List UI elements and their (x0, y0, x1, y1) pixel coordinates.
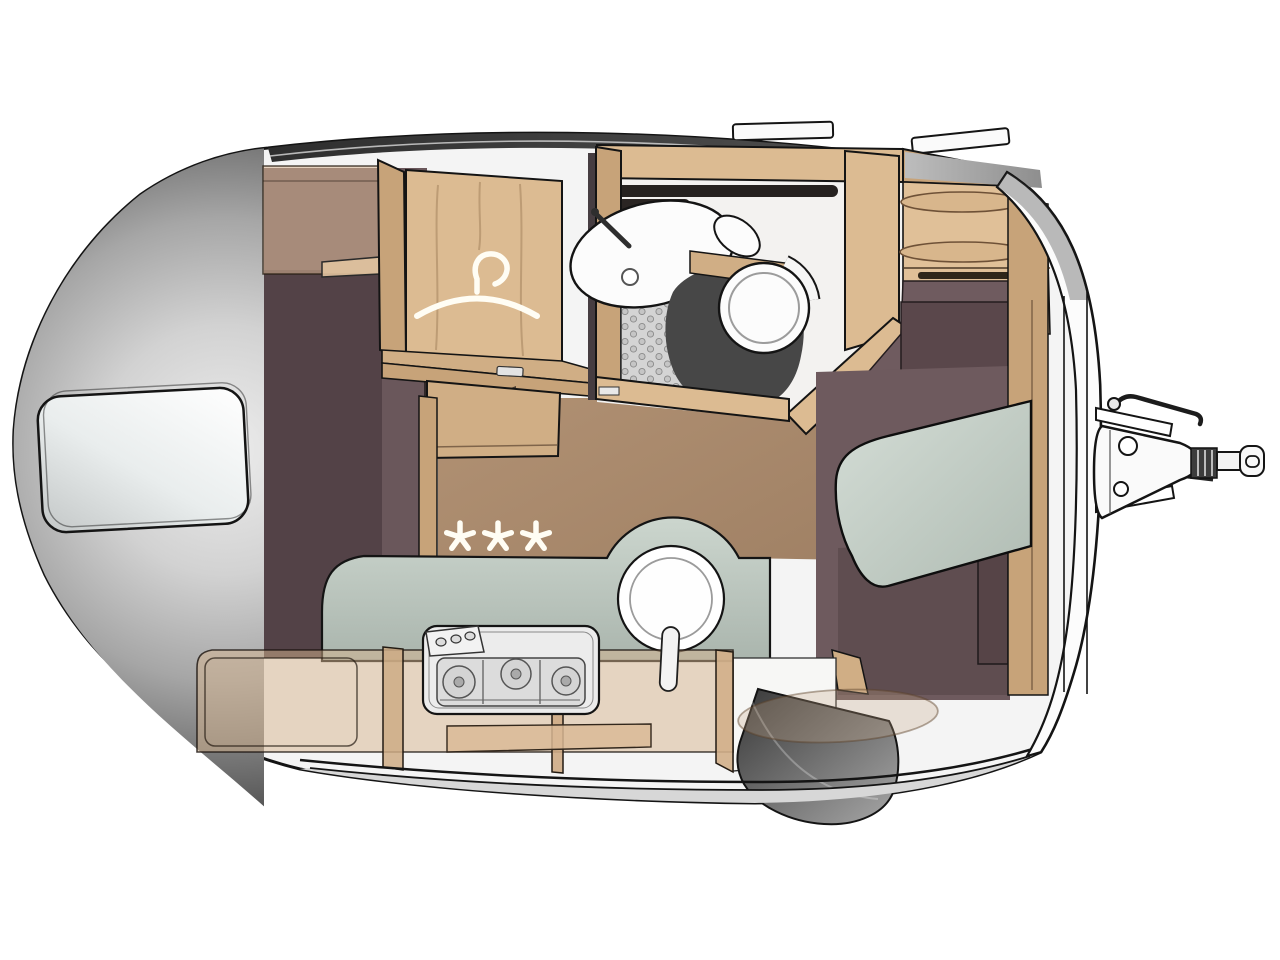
rear-window (36, 382, 252, 534)
drawbar-hitch (1094, 396, 1264, 518)
shelf-oval-bottom (900, 242, 1026, 262)
front-storage-box (901, 302, 1008, 374)
door-hinge-detail (599, 387, 619, 395)
floorplan-page (0, 0, 1280, 960)
under-seat-box (978, 552, 1008, 664)
overhead-locker (263, 166, 380, 277)
floor-divider-plank (419, 396, 437, 560)
burner-3-cap (561, 676, 571, 686)
wardrobe-front (406, 170, 562, 362)
cabinet-right-wall (716, 650, 733, 772)
burner-1-cap (454, 677, 464, 687)
faucet-base (591, 208, 599, 216)
hob-knob-3 (465, 632, 475, 640)
kick-plank (447, 724, 651, 752)
handle-knob (1108, 398, 1120, 410)
toilet-bowl (719, 263, 809, 353)
coupling-bolt-1 (1119, 437, 1137, 455)
shelf-slot-long (610, 185, 838, 197)
wardrobe-left-wall (378, 160, 406, 358)
cooking-hob (423, 626, 599, 714)
caravan-floorplan-illustration (0, 0, 1280, 960)
hob-knob-2 (451, 635, 461, 643)
roof-vent-front (911, 128, 1009, 154)
cabinet-post-1 (383, 647, 403, 770)
latch-detail (497, 366, 523, 376)
roof-vent-rear (733, 122, 833, 141)
coupling-bolt-2 (1114, 482, 1128, 496)
burner-2-cap (511, 669, 521, 679)
sink-faucet (659, 627, 679, 692)
hitch-shaft (1217, 452, 1241, 470)
hitch-head (1240, 446, 1264, 476)
shelf-slot (918, 272, 1022, 279)
hob-knob-1 (436, 638, 446, 646)
basin-drain (622, 269, 638, 285)
